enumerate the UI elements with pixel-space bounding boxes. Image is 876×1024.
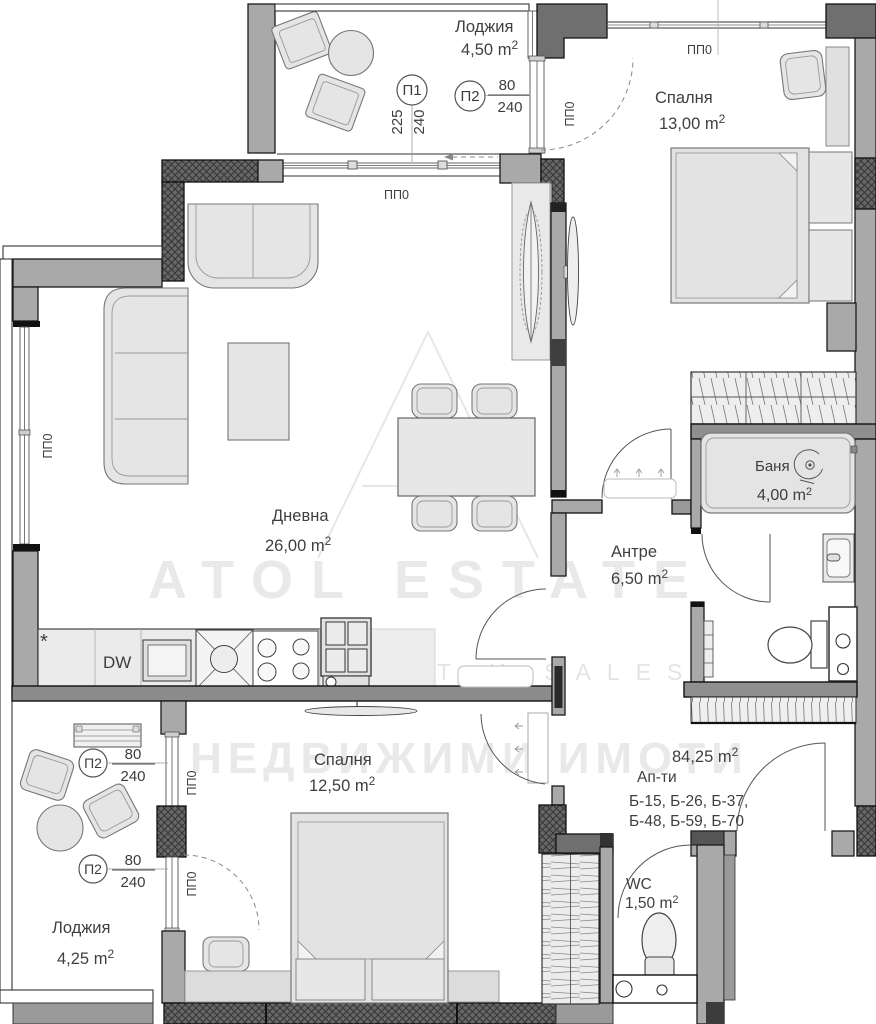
svg-text:ПП0: ПП0	[563, 101, 577, 126]
svg-text:Баня: Баня	[755, 458, 790, 475]
svg-text:Б-48, Б-59, Б-70: Б-48, Б-59, Б-70	[629, 813, 744, 830]
svg-text:П2: П2	[84, 861, 102, 877]
svg-text:Б-15, Б-26, Б-37,: Б-15, Б-26, Б-37,	[629, 793, 748, 810]
svg-text:Дневна: Дневна	[272, 507, 329, 525]
svg-text:Спалня: Спалня	[655, 89, 713, 107]
svg-text:4,00 m2: 4,00 m2	[757, 486, 812, 504]
svg-text:80: 80	[125, 852, 142, 869]
svg-text:80: 80	[499, 77, 516, 94]
svg-text:DW: DW	[103, 653, 131, 672]
svg-text:4,25 m2: 4,25 m2	[57, 947, 114, 968]
svg-text:WC: WC	[626, 876, 652, 893]
svg-text:Антре: Антре	[611, 543, 657, 561]
svg-text:240: 240	[120, 768, 145, 785]
svg-text:ПП0: ПП0	[185, 871, 199, 896]
svg-text:ПП0: ПП0	[384, 188, 409, 202]
svg-text:Лоджия: Лоджия	[52, 919, 110, 937]
svg-text:П2: П2	[84, 755, 102, 771]
svg-text:Ап-ти: Ап-ти	[637, 769, 677, 786]
svg-text:12,50 m2: 12,50 m2	[309, 774, 376, 795]
svg-text:225: 225	[389, 109, 406, 134]
svg-text:240: 240	[120, 874, 145, 891]
svg-text:6,50 m2: 6,50 m2	[611, 567, 668, 588]
svg-text:1,50 m2: 1,50 m2	[625, 894, 679, 912]
svg-text:ПП0: ПП0	[185, 770, 199, 795]
svg-text:80: 80	[125, 746, 142, 763]
svg-text:240: 240	[411, 109, 428, 134]
svg-text:ПП0: ПП0	[41, 433, 55, 458]
svg-text:ПП0: ПП0	[687, 43, 712, 57]
svg-text:13,00 m2: 13,00 m2	[659, 112, 726, 133]
svg-text:Лоджия: Лоджия	[455, 18, 513, 36]
svg-text:4,50 m2: 4,50 m2	[461, 38, 518, 59]
svg-text:240: 240	[497, 99, 522, 116]
svg-text:П1: П1	[402, 82, 421, 99]
svg-text:Спалня: Спалня	[314, 751, 372, 769]
svg-text:П2: П2	[460, 88, 479, 105]
svg-text:26,00 m2: 26,00 m2	[265, 534, 332, 555]
svg-text:84,25 m2: 84,25 m2	[672, 745, 739, 766]
svg-text:*: *	[40, 631, 48, 653]
